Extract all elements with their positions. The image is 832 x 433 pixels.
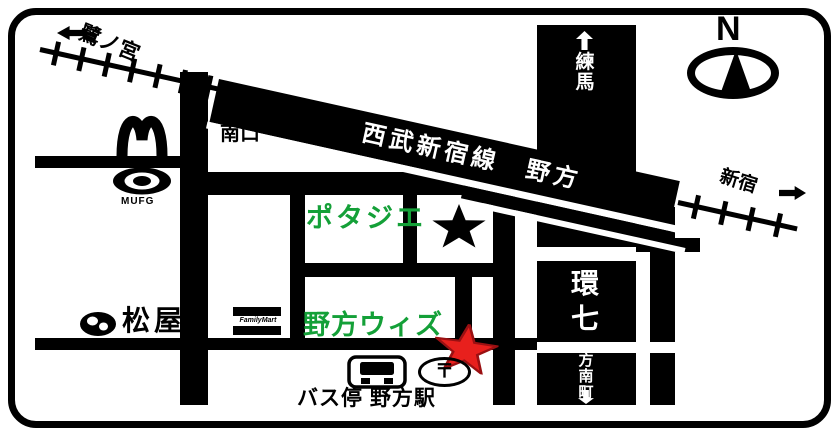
south-exit-label: 南口 (220, 124, 260, 145)
road-vertical-west (180, 72, 208, 405)
familymart-label: FamilyMart (234, 317, 282, 324)
potajie-label: ポタジエ (306, 204, 426, 232)
matsuya-icon (80, 312, 116, 336)
familymart-bar-top (233, 307, 281, 316)
east-road-crossing-gap (650, 342, 675, 353)
compass-north-label: N (716, 12, 741, 48)
matsuya-label: 松屋 (122, 306, 186, 335)
familymart-bar-bottom (233, 326, 281, 335)
bus-stop-icon (347, 355, 407, 389)
bus-stop-station-label: バス停 野方駅 (297, 388, 436, 410)
mufg-icon (113, 167, 171, 195)
access-map: 西武新宿線 野方 鷺ノ宮 新宿 南口 N 練 馬 環 七 方 南 町 MUFG (0, 0, 832, 433)
black-star-icon (431, 204, 487, 248)
kannana-label: 環 七 (562, 266, 608, 336)
mcdonalds-icon (114, 108, 170, 156)
post-office-icon: 〒 (418, 357, 471, 387)
nogata-with-label: 野方ウィズ (303, 311, 443, 339)
mufg-label: MUFG (121, 196, 154, 207)
nerima-label: 練 馬 (566, 53, 604, 93)
road-horizontal-mid (290, 263, 515, 277)
